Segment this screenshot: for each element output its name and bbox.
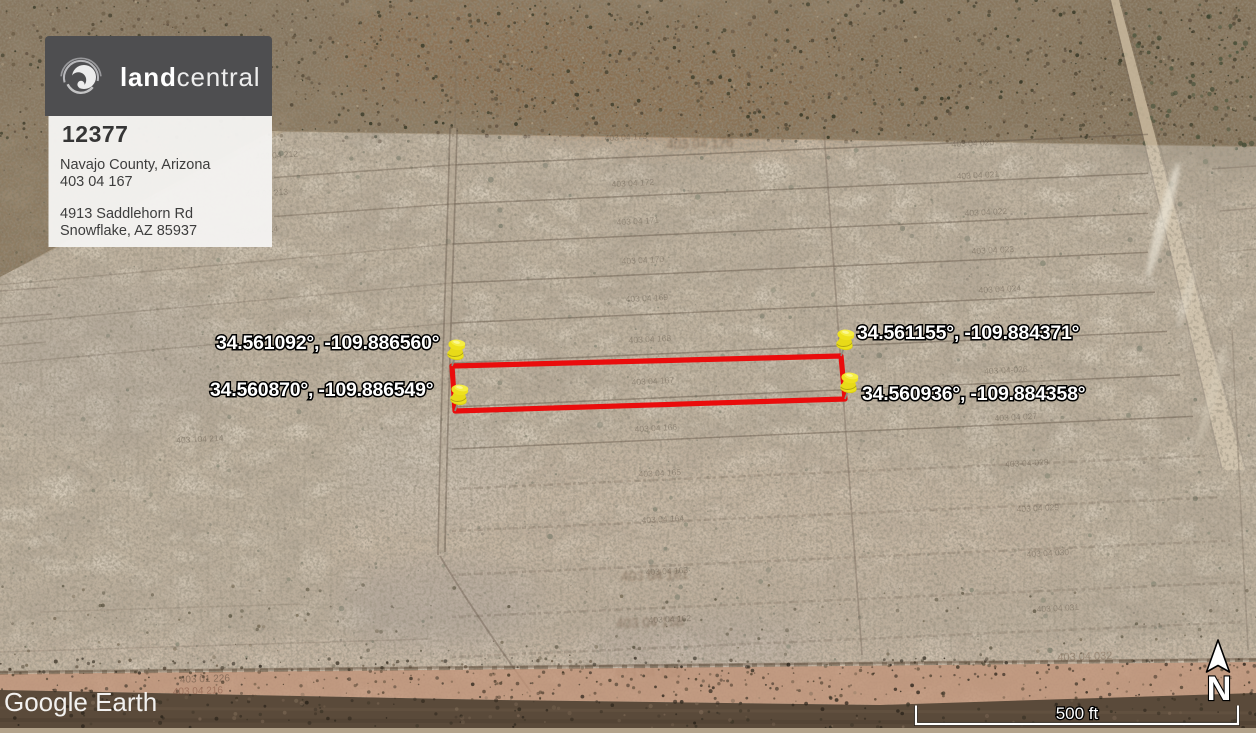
svg-text:34.561092°, -109.886560°: 34.561092°, -109.886560° [216, 332, 439, 354]
svg-text:12377: 12377 [62, 121, 128, 147]
svg-text:403 04 216: 403 04 216 [173, 685, 224, 698]
svg-text:Navajo County, Arizona: Navajo County, Arizona [60, 157, 211, 173]
svg-text:500 ft: 500 ft [1056, 704, 1099, 723]
svg-text:403 04 176: 403 04 176 [666, 135, 734, 152]
svg-text:34.561155°, -109.884371°: 34.561155°, -109.884371° [857, 322, 1079, 344]
svg-text:34.560870°, -109.886549°: 34.560870°, -109.886549° [210, 379, 433, 401]
svg-text:N: N [1207, 670, 1232, 708]
svg-text:Google Earth: Google Earth [4, 687, 157, 717]
svg-text:Snowflake, AZ 85937: Snowflake, AZ 85937 [60, 223, 197, 239]
svg-text:34.560936°, -109.884358°: 34.560936°, -109.884358° [862, 383, 1085, 405]
svg-text:403 01 226: 403 01 226 [180, 673, 231, 686]
svg-text:403 04 167: 403 04 167 [60, 174, 133, 190]
svg-text:landcentral: landcentral [120, 62, 260, 92]
svg-text:4913 Saddlehorn Rd: 4913 Saddlehorn Rd [60, 206, 193, 222]
